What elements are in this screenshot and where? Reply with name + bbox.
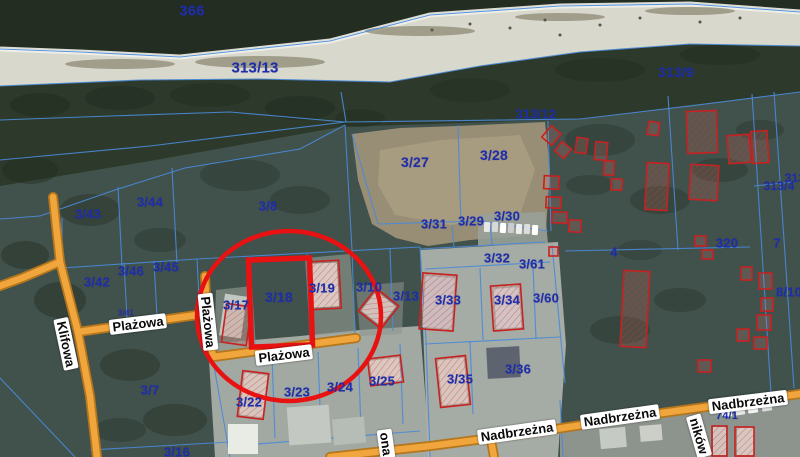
building-outline-red <box>754 337 767 349</box>
parcel-boundary-line <box>345 125 352 250</box>
beach-debris <box>515 13 605 21</box>
parcel-boundary-line <box>90 442 230 450</box>
tree-canopy <box>134 228 186 252</box>
car <box>492 222 499 232</box>
parcel-boundary-line <box>0 216 40 219</box>
building-outline-red <box>751 130 769 163</box>
building-outline-red <box>737 329 749 341</box>
building-outline-red <box>569 220 582 233</box>
tree-canopy <box>85 86 155 110</box>
building-outline-red <box>686 110 717 153</box>
building-outline-red <box>761 298 773 311</box>
beach-dot <box>469 23 472 26</box>
building-roof <box>332 417 366 446</box>
parcel-boundary-line <box>118 187 122 266</box>
building-outline-red <box>741 267 752 280</box>
building-outline-red <box>702 250 713 259</box>
building-outline-red <box>367 355 403 386</box>
beach-debris <box>645 7 735 15</box>
parcel-boundary-line <box>154 261 157 317</box>
tree-canopy <box>34 282 86 318</box>
car <box>484 222 491 232</box>
building-outline-red <box>695 236 706 246</box>
map-canvas <box>0 0 800 457</box>
beach-dot <box>559 34 562 37</box>
tree-canopy <box>270 186 330 214</box>
beach-dot <box>639 17 642 20</box>
building-outline-red <box>611 179 623 191</box>
tree-canopy <box>566 175 614 195</box>
parcel-boundary-line <box>774 92 794 388</box>
road <box>491 440 494 457</box>
tree-canopy <box>430 78 510 102</box>
parcel-boundary-line <box>0 378 75 457</box>
building-outline-red <box>594 142 608 161</box>
tree-canopy <box>170 83 250 107</box>
building-outline-red <box>552 212 568 224</box>
beach-dot <box>544 19 547 22</box>
building-outline-red <box>490 284 523 331</box>
car <box>508 223 515 233</box>
road <box>78 315 197 332</box>
parcel-boundary-line <box>124 263 127 318</box>
building-outline-red <box>221 303 251 345</box>
parcel-boundary-line <box>754 182 793 186</box>
tree-canopy <box>143 404 207 436</box>
building-outline-red <box>620 270 650 347</box>
beach-dot <box>431 29 434 32</box>
building-outline-red <box>698 360 711 372</box>
building-roof <box>228 424 258 454</box>
building-outline-red <box>436 356 471 408</box>
tree-canopy <box>2 156 58 184</box>
beach-dot <box>509 27 512 30</box>
beach-debris <box>65 59 175 69</box>
building-outline-red <box>546 197 562 209</box>
car <box>516 224 523 234</box>
tree-canopy <box>654 288 706 312</box>
building-outline-red <box>419 273 457 331</box>
car <box>532 225 539 235</box>
car <box>500 223 507 233</box>
beach-dot <box>739 17 742 20</box>
tree-canopy <box>335 109 385 127</box>
car <box>524 224 531 234</box>
building-outline-red <box>549 247 558 256</box>
building-roof <box>287 405 332 446</box>
beach-debris <box>195 56 325 68</box>
tree-canopy <box>94 418 146 442</box>
building-roof <box>639 424 662 442</box>
building-outline-red <box>712 426 727 456</box>
tree-canopy <box>680 45 760 65</box>
building-outline-red <box>647 121 660 135</box>
building-outline-red <box>759 273 772 289</box>
building-outline-red <box>544 176 560 190</box>
building-outline-red <box>604 161 615 176</box>
building-outline-red <box>735 427 754 456</box>
building-roof <box>486 346 521 379</box>
building-outline-red <box>645 162 669 210</box>
building-outline-red <box>757 315 771 330</box>
tree-canopy <box>100 349 160 381</box>
building-outline-red <box>575 137 588 153</box>
beach-dot <box>699 21 702 24</box>
cadastral-map-viewport[interactable]: 366313/13313/9313/123/273/283/313/293/30… <box>0 0 800 457</box>
building-outline-red <box>689 164 719 200</box>
terrain-region <box>378 135 535 225</box>
beach-dot <box>599 24 602 27</box>
tree-canopy <box>555 58 645 82</box>
building-outline-red <box>727 134 751 163</box>
tree-canopy <box>10 93 70 117</box>
building-roof <box>599 427 627 449</box>
highlight-parcel-rect <box>249 258 313 347</box>
